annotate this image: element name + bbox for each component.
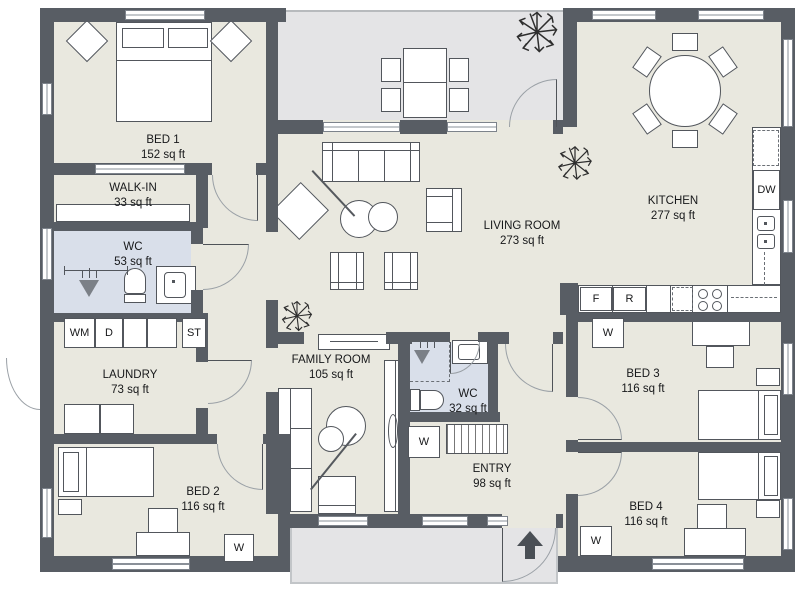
furniture-line (332, 143, 333, 181)
wall (54, 222, 200, 231)
window (125, 10, 205, 20)
furniture-line (89, 268, 90, 278)
toilet-tank (124, 294, 146, 303)
kitchen-chair (672, 130, 698, 148)
wall (266, 178, 278, 232)
wall (256, 163, 278, 175)
kitchen-chair (672, 33, 698, 51)
upper-cabinet-dashed (753, 130, 779, 166)
furniture-line (395, 361, 396, 511)
bed4-pillow (764, 456, 778, 496)
window (42, 83, 52, 115)
furniture-line (64, 266, 65, 275)
refrigerator-box: R (613, 287, 646, 311)
window (447, 122, 497, 132)
plant-icon (514, 9, 560, 55)
bed4-desk (684, 528, 746, 556)
dishwasher-box: DW (753, 170, 780, 210)
furniture-line (358, 151, 359, 181)
bed1-pillow (168, 28, 208, 48)
living-armchair (384, 252, 418, 290)
wall (266, 392, 278, 514)
living-armchair (426, 188, 462, 232)
laundry-sink-cabinet (147, 318, 177, 348)
wall (410, 332, 450, 342)
counter-dash-line (764, 252, 765, 285)
wall (400, 120, 447, 134)
furniture-line (330, 341, 378, 342)
furniture-line (338, 253, 339, 289)
wardrobe-entry: W (408, 426, 440, 458)
furniture-line (290, 389, 291, 511)
bed3-desk (692, 318, 750, 346)
desk-chair (148, 508, 178, 534)
entry-direction-arrow (517, 531, 543, 546)
wall (278, 514, 502, 528)
room-label-kitchen: KITCHEN277 sq ft (648, 194, 698, 224)
round-table (318, 426, 344, 452)
washing-machine-box: WM (64, 318, 95, 348)
cooktop-burner (698, 289, 708, 299)
room-label-walk-in: WALK-IN33 sq ft (109, 181, 157, 211)
wall (196, 175, 208, 228)
floor-plan: BED 1152 sq ft WALK-IN33 sq ft WC53 sq f… (0, 0, 800, 600)
furniture-line (117, 60, 211, 61)
storage-box: ST (182, 318, 206, 348)
wc2-toilet-tank (410, 389, 420, 411)
round-table (368, 202, 398, 232)
furniture-line (86, 448, 87, 496)
wall (278, 332, 304, 344)
wall (566, 494, 578, 556)
shelf-detail (388, 414, 398, 448)
wall (553, 332, 563, 344)
bed3-pillow (764, 395, 778, 435)
window (95, 164, 185, 174)
window (783, 200, 793, 253)
window (783, 39, 793, 127)
shower-screen-wc2 (410, 340, 450, 382)
nightstand (58, 499, 82, 515)
furniture-line (670, 286, 671, 312)
furniture-line (646, 286, 647, 312)
furniture-line (291, 468, 311, 469)
wall (54, 434, 217, 444)
bed2-desk (136, 532, 190, 556)
patio-chair (381, 58, 401, 82)
nightstand (756, 500, 780, 518)
room-label-bed2: BED 2116 sq ft (181, 485, 224, 515)
patio-chair (449, 88, 469, 112)
wall (563, 8, 577, 127)
room-label-bed1: BED 1152 sq ft (141, 133, 185, 163)
laundry-cabinet (64, 404, 100, 434)
wc2-toilet (420, 390, 444, 410)
wall (578, 442, 781, 452)
plant-icon (280, 299, 314, 333)
cooktop-burner (712, 289, 722, 299)
wardrobe-bed3: W (592, 318, 624, 348)
window (487, 516, 508, 526)
wall (278, 120, 323, 134)
wall (497, 332, 509, 344)
patio-table (403, 48, 447, 118)
window (592, 10, 656, 20)
furniture-line (764, 222, 767, 225)
furniture-line (404, 82, 446, 83)
furniture-line (323, 150, 419, 151)
cooktop-burner (698, 301, 708, 311)
furniture-line (410, 143, 411, 181)
window (42, 228, 52, 280)
family-armchair (318, 476, 356, 514)
cabinet-box (123, 318, 147, 348)
furniture-line (319, 505, 355, 506)
wall (266, 8, 278, 178)
patio-chair (381, 88, 401, 112)
furniture-line (291, 428, 311, 429)
wall (566, 313, 578, 397)
wall (191, 222, 203, 244)
wall (266, 300, 278, 348)
bed1-pillow (122, 28, 164, 48)
room-label-family-room: FAMILY ROOM105 sq ft (292, 353, 371, 383)
desk-chair (697, 504, 727, 530)
window (783, 343, 793, 395)
kitchen-round-table (649, 55, 721, 127)
patio-chair (449, 58, 469, 82)
wall (556, 514, 563, 528)
upper-cabinet-dashed (672, 287, 693, 311)
room-label-wc1: WC53 sq ft (114, 240, 152, 270)
furniture-line (331, 282, 363, 283)
furniture-line (410, 253, 411, 289)
fridge-box: F (580, 287, 612, 311)
room-label-laundry: LAUNDRY73 sq ft (103, 368, 158, 398)
room-label-bed4: BED 4116 sq ft (624, 500, 667, 530)
room-label-living-room: LIVING ROOM273 sq ft (484, 219, 561, 249)
entry-bench (446, 424, 508, 454)
nightstand (756, 368, 780, 386)
furniture-line (764, 240, 767, 243)
furniture-line (356, 253, 357, 289)
furniture-line (172, 280, 175, 283)
wall (488, 342, 498, 422)
tv-console (318, 334, 390, 350)
furniture-line (452, 189, 453, 231)
window (422, 516, 468, 526)
furniture-line (392, 253, 393, 289)
desk-chair (706, 346, 734, 368)
window (698, 10, 764, 20)
window (318, 516, 368, 526)
cooktop-burner (712, 301, 722, 311)
counter-dash-line (731, 297, 777, 298)
dryer-box: D (95, 318, 123, 348)
living-sofa (322, 142, 420, 182)
bed2-pillow (63, 452, 79, 492)
window (42, 488, 52, 538)
laundry-cabinet (100, 404, 134, 434)
entry-arrow-stem (525, 546, 535, 559)
furniture-line (758, 453, 759, 499)
wall (278, 434, 290, 556)
furniture-line (385, 282, 417, 283)
room-label-bed3: BED 3116 sq ft (621, 367, 664, 397)
furniture-line (758, 391, 759, 439)
window (783, 498, 793, 550)
furniture-line (384, 151, 385, 181)
furniture-line (727, 286, 728, 312)
window (112, 558, 190, 570)
plant-icon (556, 144, 594, 182)
window (652, 558, 744, 570)
furniture-line (96, 270, 97, 278)
wall (560, 283, 578, 315)
wall (566, 440, 578, 452)
wall (398, 332, 410, 515)
living-armchair (330, 252, 364, 290)
room-label-wc2: WC32 sq ft (449, 387, 487, 417)
furniture-line (82, 270, 83, 278)
furniture-line (427, 196, 452, 197)
sink-basin (164, 272, 186, 298)
window (323, 122, 400, 132)
wardrobe-bed4: W (580, 526, 612, 556)
shower-head-icon (79, 280, 99, 297)
room-label-entry: ENTRY98 sq ft (473, 462, 512, 492)
door-side-exterior (6, 358, 40, 410)
wardrobe-bed2: W (224, 534, 254, 562)
furniture-line (427, 222, 452, 223)
